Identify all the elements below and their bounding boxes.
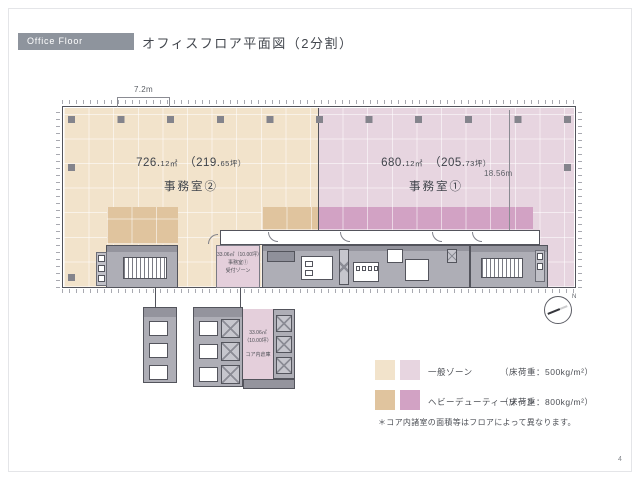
core-bottom-cap xyxy=(243,379,295,389)
page-number: 4 xyxy=(618,456,622,463)
column-row-top xyxy=(68,116,571,123)
elevator-bank-left-cap xyxy=(144,308,176,317)
connector-wall xyxy=(155,288,156,307)
shaft-hatch xyxy=(221,342,240,361)
shaft-annex-right xyxy=(535,250,545,282)
dimension-span-tick xyxy=(169,97,170,107)
stairwell-right xyxy=(481,258,523,278)
shaft-box xyxy=(98,275,105,282)
elevator-car xyxy=(149,365,168,380)
central-core xyxy=(262,245,470,288)
shaft-box xyxy=(98,255,105,262)
legend-footnote: ＊コア内諸室の面積等はフロアによって異なります。 xyxy=(378,417,576,428)
toilet-booth xyxy=(362,266,366,271)
core-interior-room: 33.06㎡ （10.00坪） コア内倉庫 xyxy=(243,309,273,379)
shaft-hatch xyxy=(276,315,292,332)
core-room-name-label: コア内倉庫 xyxy=(243,351,273,359)
shaft-hatch xyxy=(221,365,240,384)
north-label: N xyxy=(572,294,576,300)
stairwell-left xyxy=(123,257,167,279)
reception-zone-label: 受付ゾーン xyxy=(217,267,259,275)
legend-swatch-general-beige xyxy=(375,360,395,380)
restroom-east xyxy=(353,262,379,282)
room-office-1-name: 事務室① xyxy=(318,178,554,194)
elevator-bank-middle-cap xyxy=(194,308,242,317)
stair-core-left xyxy=(106,245,178,288)
elevator-car xyxy=(199,367,218,382)
legend-label-general: 一般ゾーン xyxy=(428,366,473,378)
shaft-box xyxy=(537,263,543,270)
room-office-1-area: 680.12㎡ （205.73坪） xyxy=(318,154,554,170)
header-badge: Office Floor xyxy=(18,33,134,50)
legend-load-general: （床荷重：500kg/m²） xyxy=(500,366,593,378)
ruler-ticks-left xyxy=(56,106,60,288)
elevator-car xyxy=(149,343,168,358)
restroom-west xyxy=(301,256,333,280)
reception-name-label: 事務室① xyxy=(217,259,259,267)
page-title: オフィスフロア平面図（2分割） xyxy=(142,33,353,52)
stair-core-right xyxy=(470,245,548,288)
column xyxy=(564,164,571,171)
ruler-ticks-right xyxy=(578,106,582,288)
shaft-hatch xyxy=(339,249,349,285)
elevator-bank-middle xyxy=(193,307,243,387)
toilet-booth xyxy=(356,266,360,271)
fixture xyxy=(305,261,313,267)
fixture xyxy=(305,270,313,276)
core-service-room xyxy=(267,251,295,262)
legend-load-heavy: （床荷重：800kg/m²） xyxy=(500,396,593,408)
pantry xyxy=(387,249,403,263)
shaft-hatch xyxy=(276,336,292,353)
shaft-column-right xyxy=(273,309,295,379)
elevator-bank-left xyxy=(143,307,177,383)
shaft-hatch xyxy=(447,249,457,263)
shaft-hatch xyxy=(221,319,240,338)
north-compass-icon xyxy=(544,296,572,324)
elevator-car xyxy=(199,321,218,336)
shaft-hatch xyxy=(276,357,292,374)
shaft-box xyxy=(537,253,543,260)
toilet-booth xyxy=(374,266,378,271)
shaft-annex-left xyxy=(96,252,107,286)
elevator-car xyxy=(199,344,218,359)
room-office-1: 680.12㎡ （205.73坪） 事務室① xyxy=(318,154,554,194)
core-room-area-label2: （10.00坪） xyxy=(243,337,273,345)
stair-core-left-cap xyxy=(107,246,177,252)
ruler-ticks-bottom xyxy=(62,289,576,293)
ruler-ticks-top xyxy=(62,100,576,104)
room-office-2: 726.12㎡ （219.65坪） 事務室② xyxy=(64,154,318,194)
dimension-span-line xyxy=(117,97,170,98)
ev-service-room xyxy=(405,259,429,281)
page: Office Floor オフィスフロア平面図（2分割） 7.2m 18.56m xyxy=(0,0,640,480)
reception-room: 33.06㎡（10.00坪） 事務室① 受付ゾーン xyxy=(216,245,260,288)
reception-area-label: 33.06㎡（10.00坪） xyxy=(217,251,259,259)
dimension-span-label: 7.2m xyxy=(117,85,170,94)
room-office-2-area: 726.12㎡ （219.65坪） xyxy=(64,154,318,170)
legend-swatch-general-pink xyxy=(400,360,420,380)
toilet-booth xyxy=(368,266,372,271)
core-room-area-label: 33.06㎡ xyxy=(243,329,273,337)
compass-needle-icon xyxy=(547,305,567,315)
legend-swatch-heavy-pink xyxy=(400,390,420,410)
elevator-car xyxy=(149,321,168,336)
dimension-span-tick xyxy=(117,97,118,107)
connector-wall xyxy=(240,288,241,309)
column xyxy=(68,274,75,281)
room-office-2-name: 事務室② xyxy=(64,178,318,194)
legend-swatch-heavy-beige xyxy=(375,390,395,410)
shaft-box xyxy=(98,265,105,272)
